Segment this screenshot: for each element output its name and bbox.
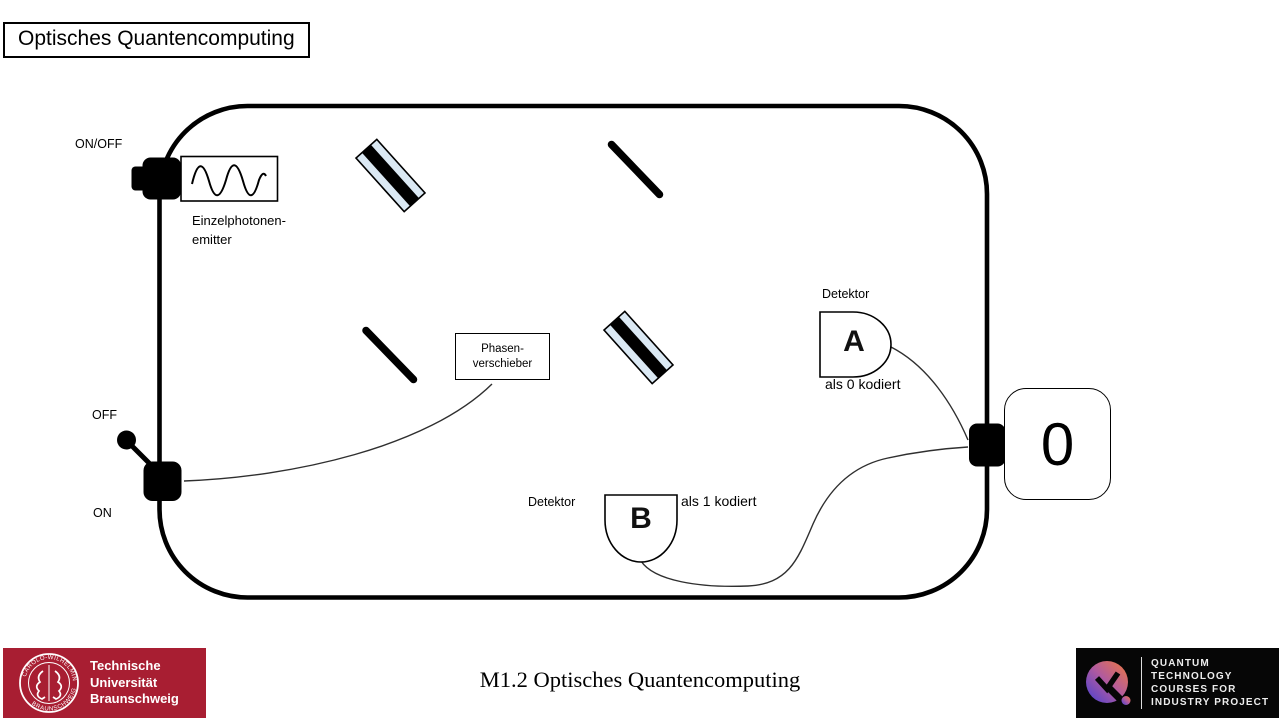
- slide-title: Optisches Quantencomputing: [3, 22, 310, 58]
- emitter-label: Einzelphotonen- emitter: [192, 211, 286, 249]
- seal-lion-left: [37, 671, 45, 699]
- emitter-label-line2: emitter: [192, 230, 286, 249]
- emitter-box: [181, 157, 278, 202]
- source-connector-body: [143, 158, 182, 200]
- detector-b-wire: [641, 447, 968, 586]
- off-label: OFF: [92, 408, 117, 422]
- tub-line2: Universität: [90, 675, 179, 692]
- qtcip-line4: INDUSTRY PROJECT: [1151, 696, 1269, 709]
- quantum-optics-diagram: [0, 0, 1280, 720]
- detector-b-coding: als 1 kodiert: [681, 493, 756, 509]
- tub-line3: Braunschweig: [90, 691, 179, 708]
- qtcip-line3: COURSES FOR: [1151, 683, 1269, 696]
- qtcip-divider: [1141, 657, 1142, 709]
- beamsplitter-1: [356, 139, 425, 211]
- tu-braunschweig-wordmark: Technische Universität Braunschweig: [90, 658, 179, 708]
- detector-a-wire: [891, 347, 968, 440]
- qtcip-line2: TECHNOLOGY: [1151, 670, 1269, 683]
- mirror-top-right: [612, 145, 660, 195]
- beamsplitter-2: [604, 311, 673, 383]
- tu-braunschweig-seal: CAROLO-WILHELMINA BRAUNSCHWEIG: [18, 651, 80, 715]
- output-connector: [969, 424, 1006, 467]
- on-label: ON: [93, 506, 112, 520]
- tu-braunschweig-logo: CAROLO-WILHELMINA BRAUNSCHWEIG Technisch…: [3, 648, 206, 718]
- tub-line1: Technische: [90, 658, 179, 675]
- mirror-middle-left: [366, 331, 414, 380]
- detector-b-title: Detektor: [528, 495, 575, 509]
- switch-knob: [117, 431, 136, 450]
- power-switch: [117, 431, 182, 502]
- qtcip-wordmark: QUANTUM TECHNOLOGY COURSES FOR INDUSTRY …: [1151, 657, 1269, 709]
- switch-to-phase-shifter-wire: [184, 384, 492, 481]
- qtcip-line1: QUANTUM: [1151, 657, 1269, 670]
- detector-a-coding: als 0 kodiert: [825, 376, 900, 392]
- phase-shifter-line1: Phasen-: [481, 342, 524, 357]
- seal-lion-right: [53, 671, 61, 699]
- qtcip-q-mark: [1084, 658, 1134, 708]
- switch-body: [144, 462, 182, 502]
- detector-a-letter: A: [820, 325, 888, 359]
- phase-shifter-box: Phasen- verschieber: [455, 333, 550, 380]
- source-connector: [132, 158, 182, 200]
- phase-shifter-line2: verschieber: [473, 357, 532, 372]
- detector-b-letter: B: [605, 502, 677, 536]
- output-value: 0: [1041, 410, 1074, 479]
- on-off-label: ON/OFF: [75, 137, 122, 151]
- emitter-label-line1: Einzelphotonen-: [192, 211, 286, 230]
- q-mark-dot: [1122, 696, 1131, 705]
- slide: Optisches Quantencomputing ON/OFF Einzel…: [0, 0, 1280, 720]
- qtcip-logo: QUANTUM TECHNOLOGY COURSES FOR INDUSTRY …: [1076, 648, 1279, 718]
- output-display: 0: [1004, 388, 1111, 500]
- detector-a-title: Detektor: [822, 287, 869, 301]
